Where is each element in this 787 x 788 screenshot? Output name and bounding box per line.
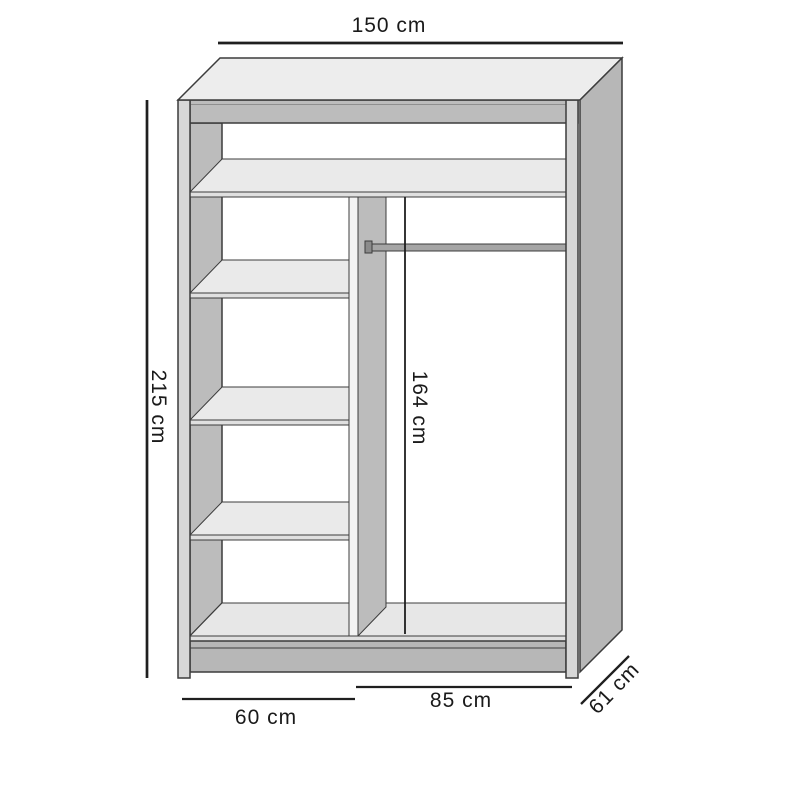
right-side-outer-face [580, 58, 622, 672]
dimension-label-width: 150 cm [352, 14, 427, 37]
wardrobe-dimension-diagram: 150 cm 215 cm 164 cm 60 cm 85 cm 61 cm [0, 0, 787, 788]
left-front-stile [178, 100, 190, 678]
right-front-stile [566, 100, 578, 678]
left-shelf-1-front-edge [190, 293, 349, 298]
hanging-rod [368, 244, 572, 251]
top-fascia [190, 100, 578, 123]
dimension-label-left-section: 60 cm [235, 706, 297, 729]
divider-front-edge [349, 197, 358, 637]
dimension-label-right-section: 85 cm [430, 689, 492, 712]
divider-side-face [358, 197, 386, 636]
top-shelf-surface [190, 159, 566, 192]
top-shelf-front-edge [190, 192, 566, 197]
dimension-label-height: 215 cm [147, 370, 170, 445]
base-plinth [190, 641, 566, 672]
dimension-label-inner-height: 164 cm [408, 371, 431, 446]
left-shelf-3-front-edge [190, 535, 349, 540]
wardrobe-diagram-canvas: 150 cm 215 cm 164 cm 60 cm 85 cm 61 cm [0, 0, 787, 788]
hanging-rod-bracket [365, 241, 372, 253]
wardrobe-drawing [178, 58, 622, 678]
top-face [178, 58, 622, 100]
dimension-label-depth: 61 cm [584, 658, 644, 719]
left-panel-inner-face [190, 123, 222, 636]
left-shelf-2-front-edge [190, 420, 349, 425]
